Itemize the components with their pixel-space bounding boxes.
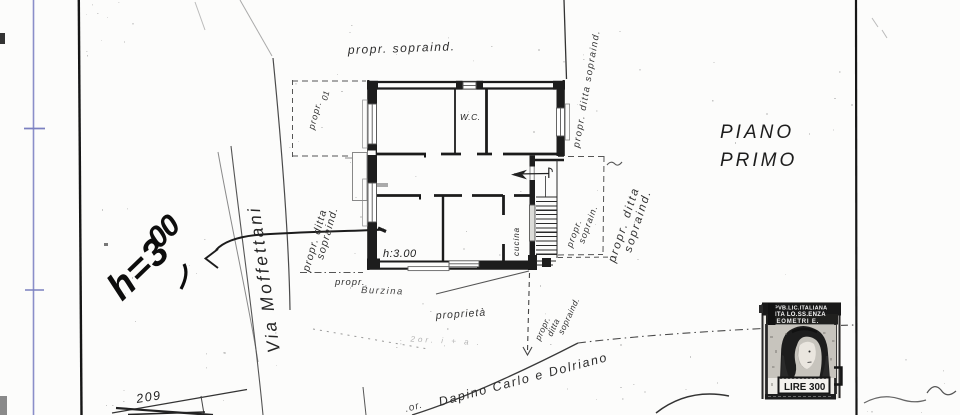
svg-text:R.PVB.LIC.ITALIANA: R.PVB.LIC.ITALIANA	[768, 306, 827, 312]
svg-text:LIRE 300: LIRE 300	[784, 382, 826, 393]
svg-text:cucina: cucina	[512, 227, 521, 256]
svg-text:Burzina: Burzina	[361, 285, 404, 297]
svg-text:h:3.00: h:3.00	[383, 248, 417, 260]
svg-text:ENTA LO.SS.ENZA: ENTA LO.SS.ENZA	[768, 312, 826, 318]
svg-text:PRIMO: PRIMO	[720, 150, 797, 171]
svg-text:PIANO: PIANO	[720, 122, 794, 143]
svg-text:GEOMETRI E.: GEOMETRI E.	[771, 319, 819, 325]
svg-text:W.C.: W.C.	[460, 112, 481, 122]
